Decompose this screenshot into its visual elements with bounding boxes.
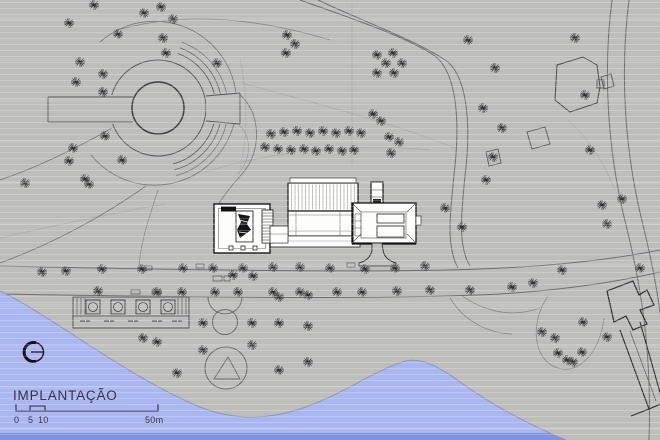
site-plan-canvas: IMPLANTAÇÃO 0 5 10 50m [0,0,660,440]
site-plan-drawing [0,0,660,440]
scale-tick-10: 10 [38,415,49,425]
scale-tick-0: 0 [14,415,19,425]
scale-end-label: 50m [145,415,163,425]
scale-tick-5: 5 [28,415,33,425]
plan-title: IMPLANTAÇÃO [13,388,118,403]
